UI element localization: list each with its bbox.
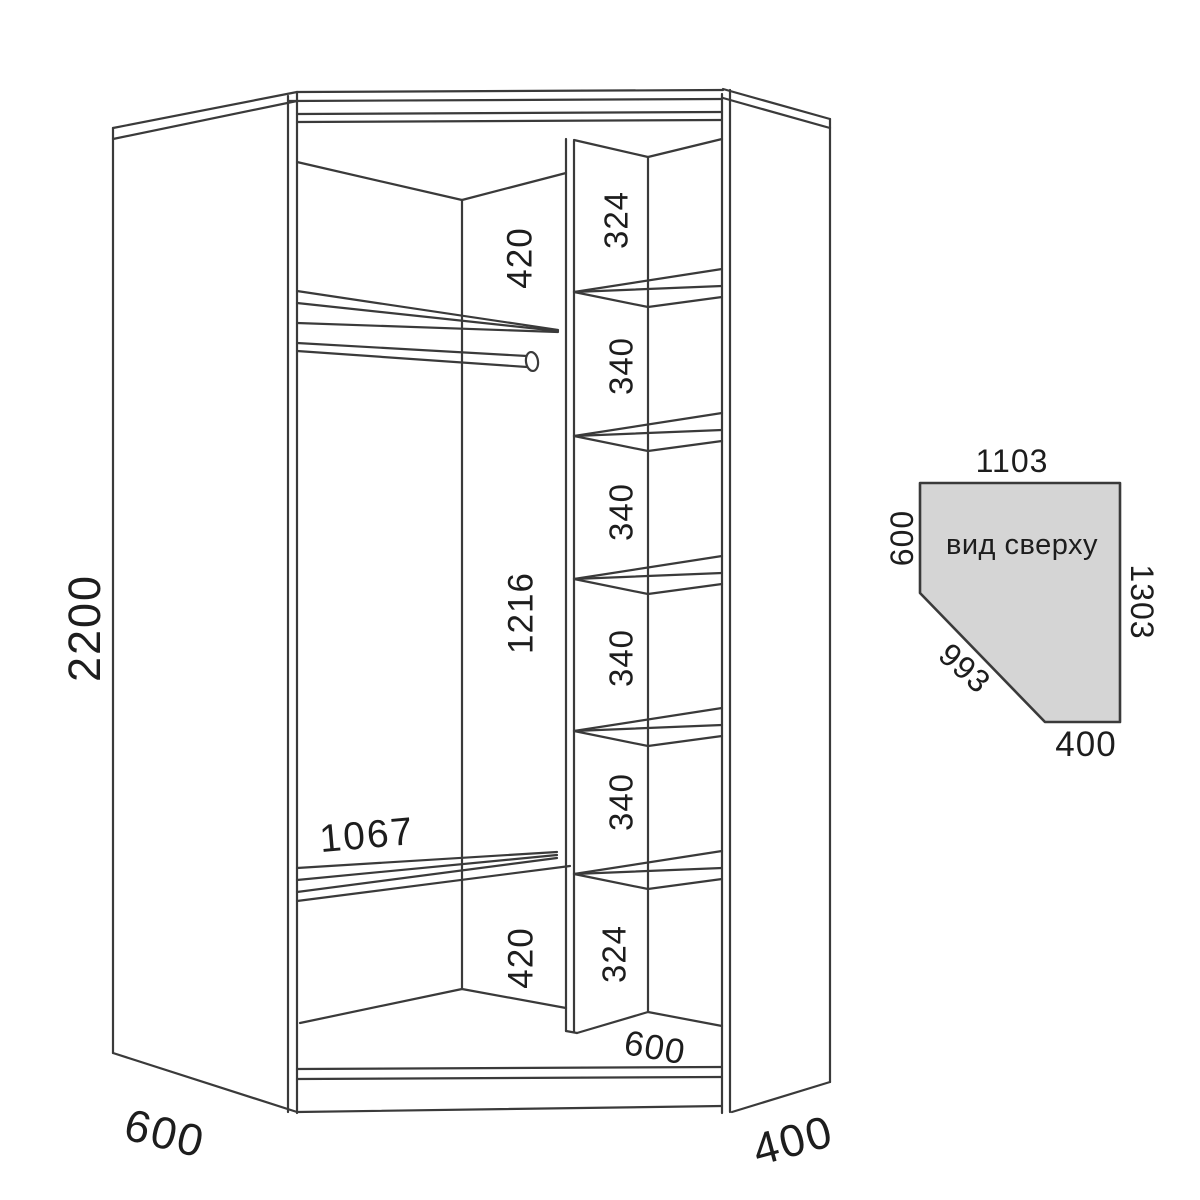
top-view-top-label: 1103 [976, 443, 1049, 479]
top-view-left-label: 600 [884, 510, 920, 566]
top-view-bottom-label: 400 [1055, 725, 1116, 764]
dim-compartment-1-label: 324 [598, 191, 635, 249]
cabinet-outline [113, 89, 830, 1113]
dim-compartment-3-label: 340 [603, 483, 640, 541]
dim-shelf-width-label: 1067 [318, 810, 416, 861]
dim-bottom-section-label: 420 [501, 927, 540, 988]
hanging-rod [297, 343, 539, 372]
dim-column-width-label: 600 [621, 1023, 688, 1072]
dim-compartment-5-label: 340 [603, 773, 640, 831]
dim-compartment-4-label: 340 [603, 629, 640, 687]
dim-top-section-label: 420 [500, 227, 539, 288]
top-view: 1103 600 1303 993 400 вид сверху [884, 443, 1160, 764]
top-view-title: вид сверху [946, 529, 1098, 561]
diagram-canvas: 2200 600 400 420 1216 1067 420 324 340 3… [0, 0, 1200, 1200]
top-view-right-label: 1303 [1124, 564, 1160, 639]
dim-compartment-2-label: 340 [603, 337, 640, 395]
upper-shelf [297, 291, 558, 332]
top-view-footprint [920, 483, 1120, 722]
front-view: 2200 600 400 420 1216 1067 420 324 340 3… [59, 89, 839, 1175]
base-plinth [297, 1067, 722, 1112]
dim-compartment-6-label: 324 [596, 925, 633, 983]
dim-depth-right-label: 400 [747, 1105, 839, 1175]
dim-depth-left-label: 600 [119, 1099, 210, 1168]
wardrobe-diagram: 2200 600 400 420 1216 1067 420 324 340 3… [0, 0, 1200, 1200]
dim-height-label: 2200 [59, 574, 110, 682]
dim-middle-section-label: 1216 [501, 572, 540, 654]
